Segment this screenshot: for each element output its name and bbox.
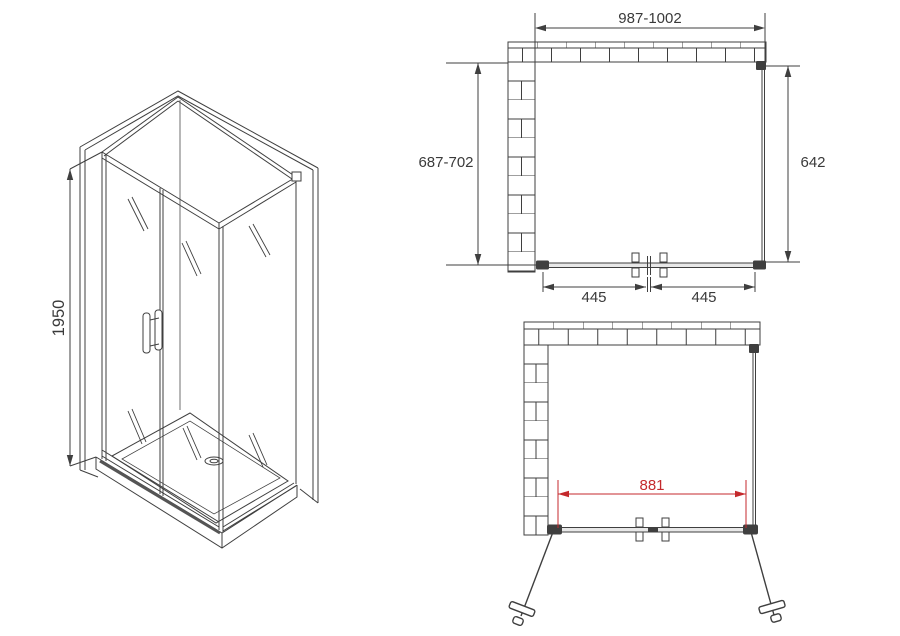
support-leg-left bbox=[521, 532, 553, 616]
arrowhead-up bbox=[67, 169, 73, 180]
arrowhead-right bbox=[735, 491, 746, 498]
anchor-tip-left bbox=[512, 616, 524, 626]
anchor-tip-right bbox=[770, 613, 782, 622]
top-plan-view: 987-1002 687-702 642 bbox=[418, 10, 825, 306]
wall-top-outer bbox=[80, 91, 318, 168]
top-bar-front-right-inner bbox=[219, 182, 296, 229]
extension-line bbox=[70, 152, 102, 169]
drain-cap bbox=[210, 459, 218, 463]
side-glass-panel bbox=[749, 344, 759, 530]
iso-door-handles bbox=[143, 310, 162, 353]
door-left-dimension-label: 445 bbox=[581, 289, 606, 306]
arrowhead-up bbox=[785, 66, 792, 77]
mounting-legs bbox=[509, 532, 786, 626]
top-edge-right-inner bbox=[178, 101, 292, 179]
opening-dimension-label: 881 bbox=[639, 477, 664, 494]
door-handle bbox=[660, 268, 667, 277]
arrowhead-right bbox=[744, 284, 755, 291]
tray-rim-inner bbox=[112, 413, 288, 523]
side-dimension: 642 bbox=[766, 66, 826, 262]
height-dimension-label: 1950 bbox=[50, 300, 68, 337]
door-track-assembly bbox=[547, 518, 758, 541]
brick-wall-top bbox=[508, 42, 766, 62]
iso-shower-tray bbox=[96, 413, 297, 548]
wall-top-inner bbox=[85, 96, 313, 170]
track-end-fitting-left bbox=[536, 261, 549, 270]
side-dimension-label: 642 bbox=[800, 154, 825, 171]
track-end-fitting-right bbox=[743, 525, 758, 535]
extension-line bbox=[766, 66, 800, 262]
door-handle bbox=[662, 532, 669, 541]
door-handle bbox=[636, 518, 643, 527]
arrowhead-down bbox=[785, 251, 792, 262]
side-glass-panel bbox=[756, 61, 766, 263]
door-handle bbox=[662, 518, 669, 527]
front-plan-view: 881 bbox=[509, 322, 786, 626]
technical-drawing: 1950 987-1002 687-702 bbox=[0, 0, 900, 636]
door-handle bbox=[632, 253, 639, 262]
brick-wall-left bbox=[524, 345, 548, 535]
wall-bracket bbox=[749, 344, 759, 353]
wall-right-bottom bbox=[300, 489, 318, 503]
arrowhead-up bbox=[475, 63, 482, 74]
arrowhead-down bbox=[475, 254, 482, 265]
corner-knob bbox=[292, 172, 301, 181]
wall-left-bottom bbox=[80, 470, 98, 477]
door-stopper bbox=[648, 528, 658, 532]
door-width-dimensions: 445 445 bbox=[543, 272, 755, 306]
corner-post bbox=[219, 223, 223, 532]
iso-enclosure-frame bbox=[102, 97, 301, 532]
arrowhead-left bbox=[535, 25, 546, 32]
top-edge-left bbox=[102, 97, 178, 152]
door-handle bbox=[632, 268, 639, 277]
arrowhead-right bbox=[754, 25, 765, 32]
drain bbox=[205, 457, 223, 465]
width-dimension-label: 987-1002 bbox=[618, 10, 681, 27]
door-handle bbox=[660, 253, 667, 262]
arrowhead-left bbox=[543, 284, 554, 291]
brick-wall-top bbox=[524, 322, 760, 345]
door-handle bbox=[636, 532, 643, 541]
arrowhead-left bbox=[558, 491, 569, 498]
wall-bracket bbox=[756, 61, 766, 70]
isometric-view: 1950 bbox=[50, 91, 318, 548]
track-end-fitting-right bbox=[753, 261, 766, 270]
tray-rim-outer bbox=[96, 457, 297, 533]
top-edge-left-inner bbox=[104, 101, 178, 156]
glass-mark bbox=[249, 433, 267, 467]
height-dimension: 1950 bbox=[50, 152, 102, 466]
arrowhead-right bbox=[635, 284, 646, 291]
extension-line bbox=[70, 457, 96, 466]
arrowhead-down bbox=[67, 455, 73, 466]
glass-panel-line bbox=[753, 348, 756, 530]
opening-dimension: 881 bbox=[558, 477, 746, 528]
glass-mark bbox=[128, 197, 148, 231]
right-panel-bottom-rail bbox=[223, 483, 296, 531]
glass-mark bbox=[249, 224, 270, 257]
glass-mark bbox=[183, 426, 201, 460]
left-door-handle bbox=[143, 313, 150, 353]
door-right-dimension-label: 445 bbox=[691, 289, 716, 306]
glass-mark bbox=[182, 241, 201, 276]
wall-anchor-right bbox=[759, 600, 786, 614]
door-track-assembly bbox=[536, 253, 766, 277]
iso-wall-panels bbox=[80, 91, 318, 503]
brick-wall-left bbox=[508, 62, 535, 272]
support-leg-right bbox=[751, 532, 774, 615]
drawing-canvas: 1950 987-1002 687-702 bbox=[0, 0, 900, 636]
depth-dimension-label: 687-702 bbox=[418, 154, 473, 171]
left-frame-post bbox=[102, 152, 106, 461]
track-end-fitting-left bbox=[547, 525, 562, 535]
glass-panel-line bbox=[762, 66, 765, 263]
extension-line bbox=[543, 272, 755, 292]
arrowhead-left bbox=[651, 284, 662, 291]
top-edge-right bbox=[178, 97, 296, 177]
top-bar-front-right bbox=[219, 177, 296, 223]
